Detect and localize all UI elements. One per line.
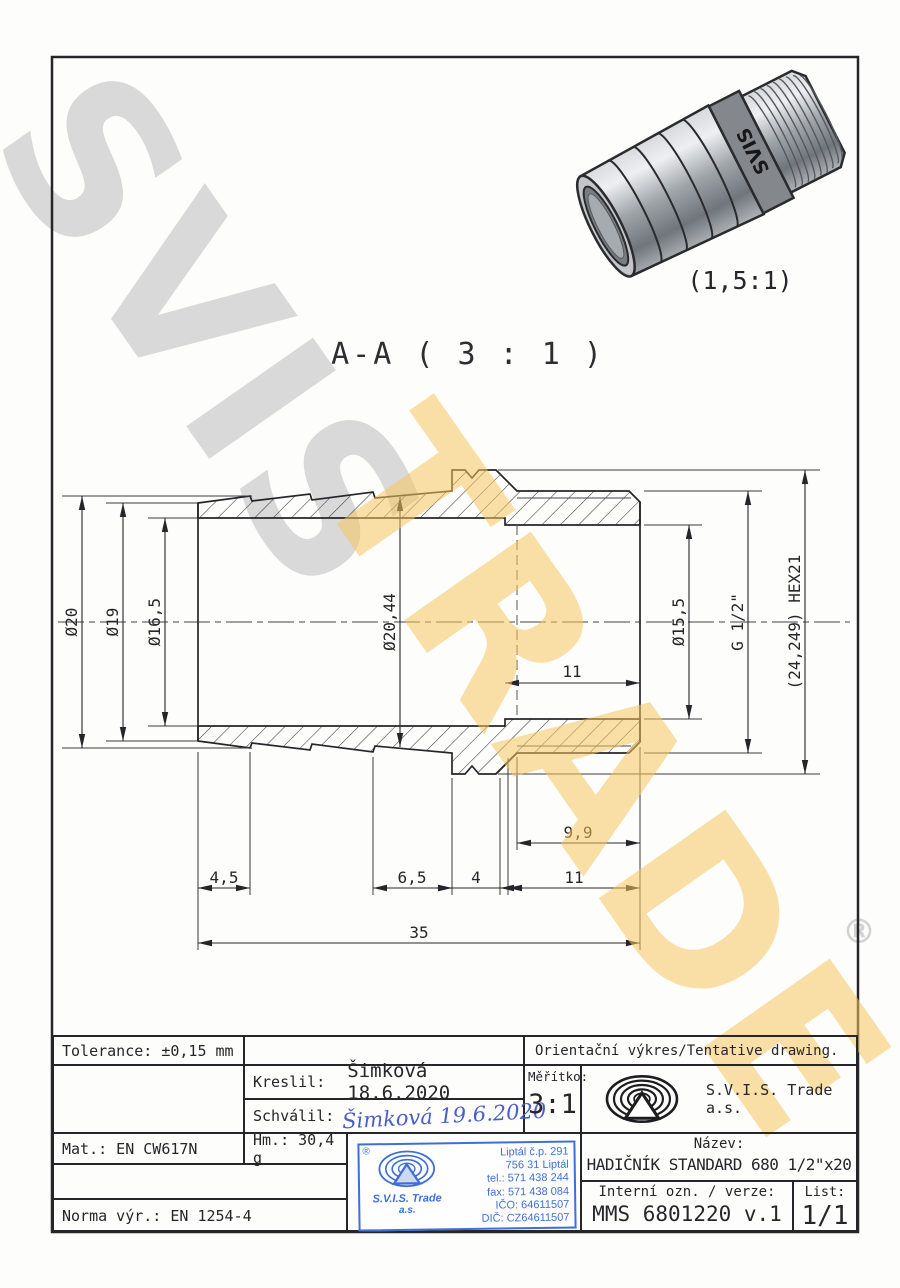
dim-label-d2044: Ø20,44 xyxy=(380,593,399,651)
dim-label-45: 4,5 xyxy=(210,868,239,887)
material-cell: Mat.: EN CW617N xyxy=(54,1134,245,1165)
stamp-logo-icon xyxy=(375,1148,438,1189)
stamp-dic: DIČ: CZ64611507 xyxy=(454,1212,569,1227)
dim-label-d165: Ø16,5 xyxy=(145,598,164,646)
meritko-label: Měřítko: xyxy=(525,1066,588,1084)
schvalil-cell: Schválil: Šimková 19.6.2020 xyxy=(245,1100,525,1134)
tolerance-cell: Tolerance: ±0,15 mm xyxy=(54,1037,245,1066)
norma-cell: Norma výr.: EN 1254-4 xyxy=(54,1200,348,1232)
dim-label-65: 6,5 xyxy=(398,868,427,887)
schvalil-label: Schválil: xyxy=(245,1107,334,1125)
interni-value: MMS 6801220 v.1 xyxy=(592,1202,782,1226)
dim-label-99: 9,9 xyxy=(564,823,593,842)
list-label: List: xyxy=(805,1184,846,1200)
dim-label-d155: Ø15,5 xyxy=(669,598,688,646)
kreslil-value: Šimková 18.6.2020 xyxy=(347,1060,523,1104)
dim-label-35: 35 xyxy=(409,923,428,942)
stamp-company-suffix: a.s. xyxy=(360,1204,454,1216)
section-view-title: A-A ( 3 : 1 ) xyxy=(331,337,605,372)
stamp-company: S.V.I.S. Trade xyxy=(360,1193,454,1205)
dim-label-4: 4 xyxy=(471,868,481,887)
list-value: 1/1 xyxy=(802,1201,849,1231)
empty-cell-left xyxy=(54,1066,245,1134)
company-stamp: ® S.V.I.S. Trade a.s. Liptál č.p. 291 75… xyxy=(357,1140,576,1231)
stamp-fax: fax: 571 438 084 xyxy=(454,1185,569,1200)
dim-label-11: 11 xyxy=(564,868,583,887)
dim-label-g12: G 1/2" xyxy=(728,593,747,651)
nazev-label: Název: xyxy=(694,1136,745,1152)
photo-scale-caption: (1,5:1) xyxy=(687,266,792,295)
dim-label-d19: Ø19 xyxy=(103,608,122,637)
dim-label-hex: (24,249) HEX21 xyxy=(785,555,804,690)
meritko-cell: Měřítko: 3:1 xyxy=(525,1066,582,1134)
stamp-cell: ® S.V.I.S. Trade a.s. Liptál č.p. 291 75… xyxy=(348,1134,582,1232)
technical-drawing-page: { "watermarks": { "primary": "SVIS", "se… xyxy=(0,0,900,1288)
weight-cell: Hm.: 30,4 g xyxy=(245,1134,348,1165)
empty-cell-bottom xyxy=(54,1165,348,1200)
interni-cell: Interní ozn. / verze: MMS 6801220 v.1 xyxy=(582,1182,794,1232)
stamp-registered-icon: ® xyxy=(362,1146,370,1157)
meritko-value: 3:1 xyxy=(528,1089,577,1120)
nazev-value: HADIČNÍK STANDARD 680 1/2"x20 xyxy=(587,1155,852,1174)
interni-label: Interní ozn. / verze: xyxy=(598,1184,775,1200)
dim-label-d20: Ø20 xyxy=(62,608,81,637)
list-cell: List: 1/1 xyxy=(794,1182,856,1232)
title-block: Tolerance: ±0,15 mm Orientační výkres/Te… xyxy=(52,1035,858,1232)
extension-lines xyxy=(62,470,820,950)
schvalil-signature: Šimková 19.6.2020 xyxy=(342,1099,547,1134)
dim-label-bore11: 11 xyxy=(562,662,581,681)
svis-logo-icon xyxy=(600,1069,684,1129)
company-name: S.V.I.S. Trade a.s. xyxy=(706,1081,856,1117)
dimension-lines xyxy=(82,470,805,943)
kreslil-label: Kreslil: xyxy=(245,1073,325,1091)
part-photo: SVIS xyxy=(565,60,854,288)
stamp-phone: tel.: 571 438 244 xyxy=(454,1172,569,1187)
nazev-cell: Název: HADIČNÍK STANDARD 680 1/2"x20 xyxy=(582,1134,856,1182)
tentative-drawing-note: Orientační výkres/Tentative drawing. xyxy=(525,1037,856,1066)
company-cell: S.V.I.S. Trade a.s. xyxy=(582,1066,856,1134)
kreslil-cell: Kreslil: Šimková 18.6.2020 xyxy=(245,1066,525,1100)
